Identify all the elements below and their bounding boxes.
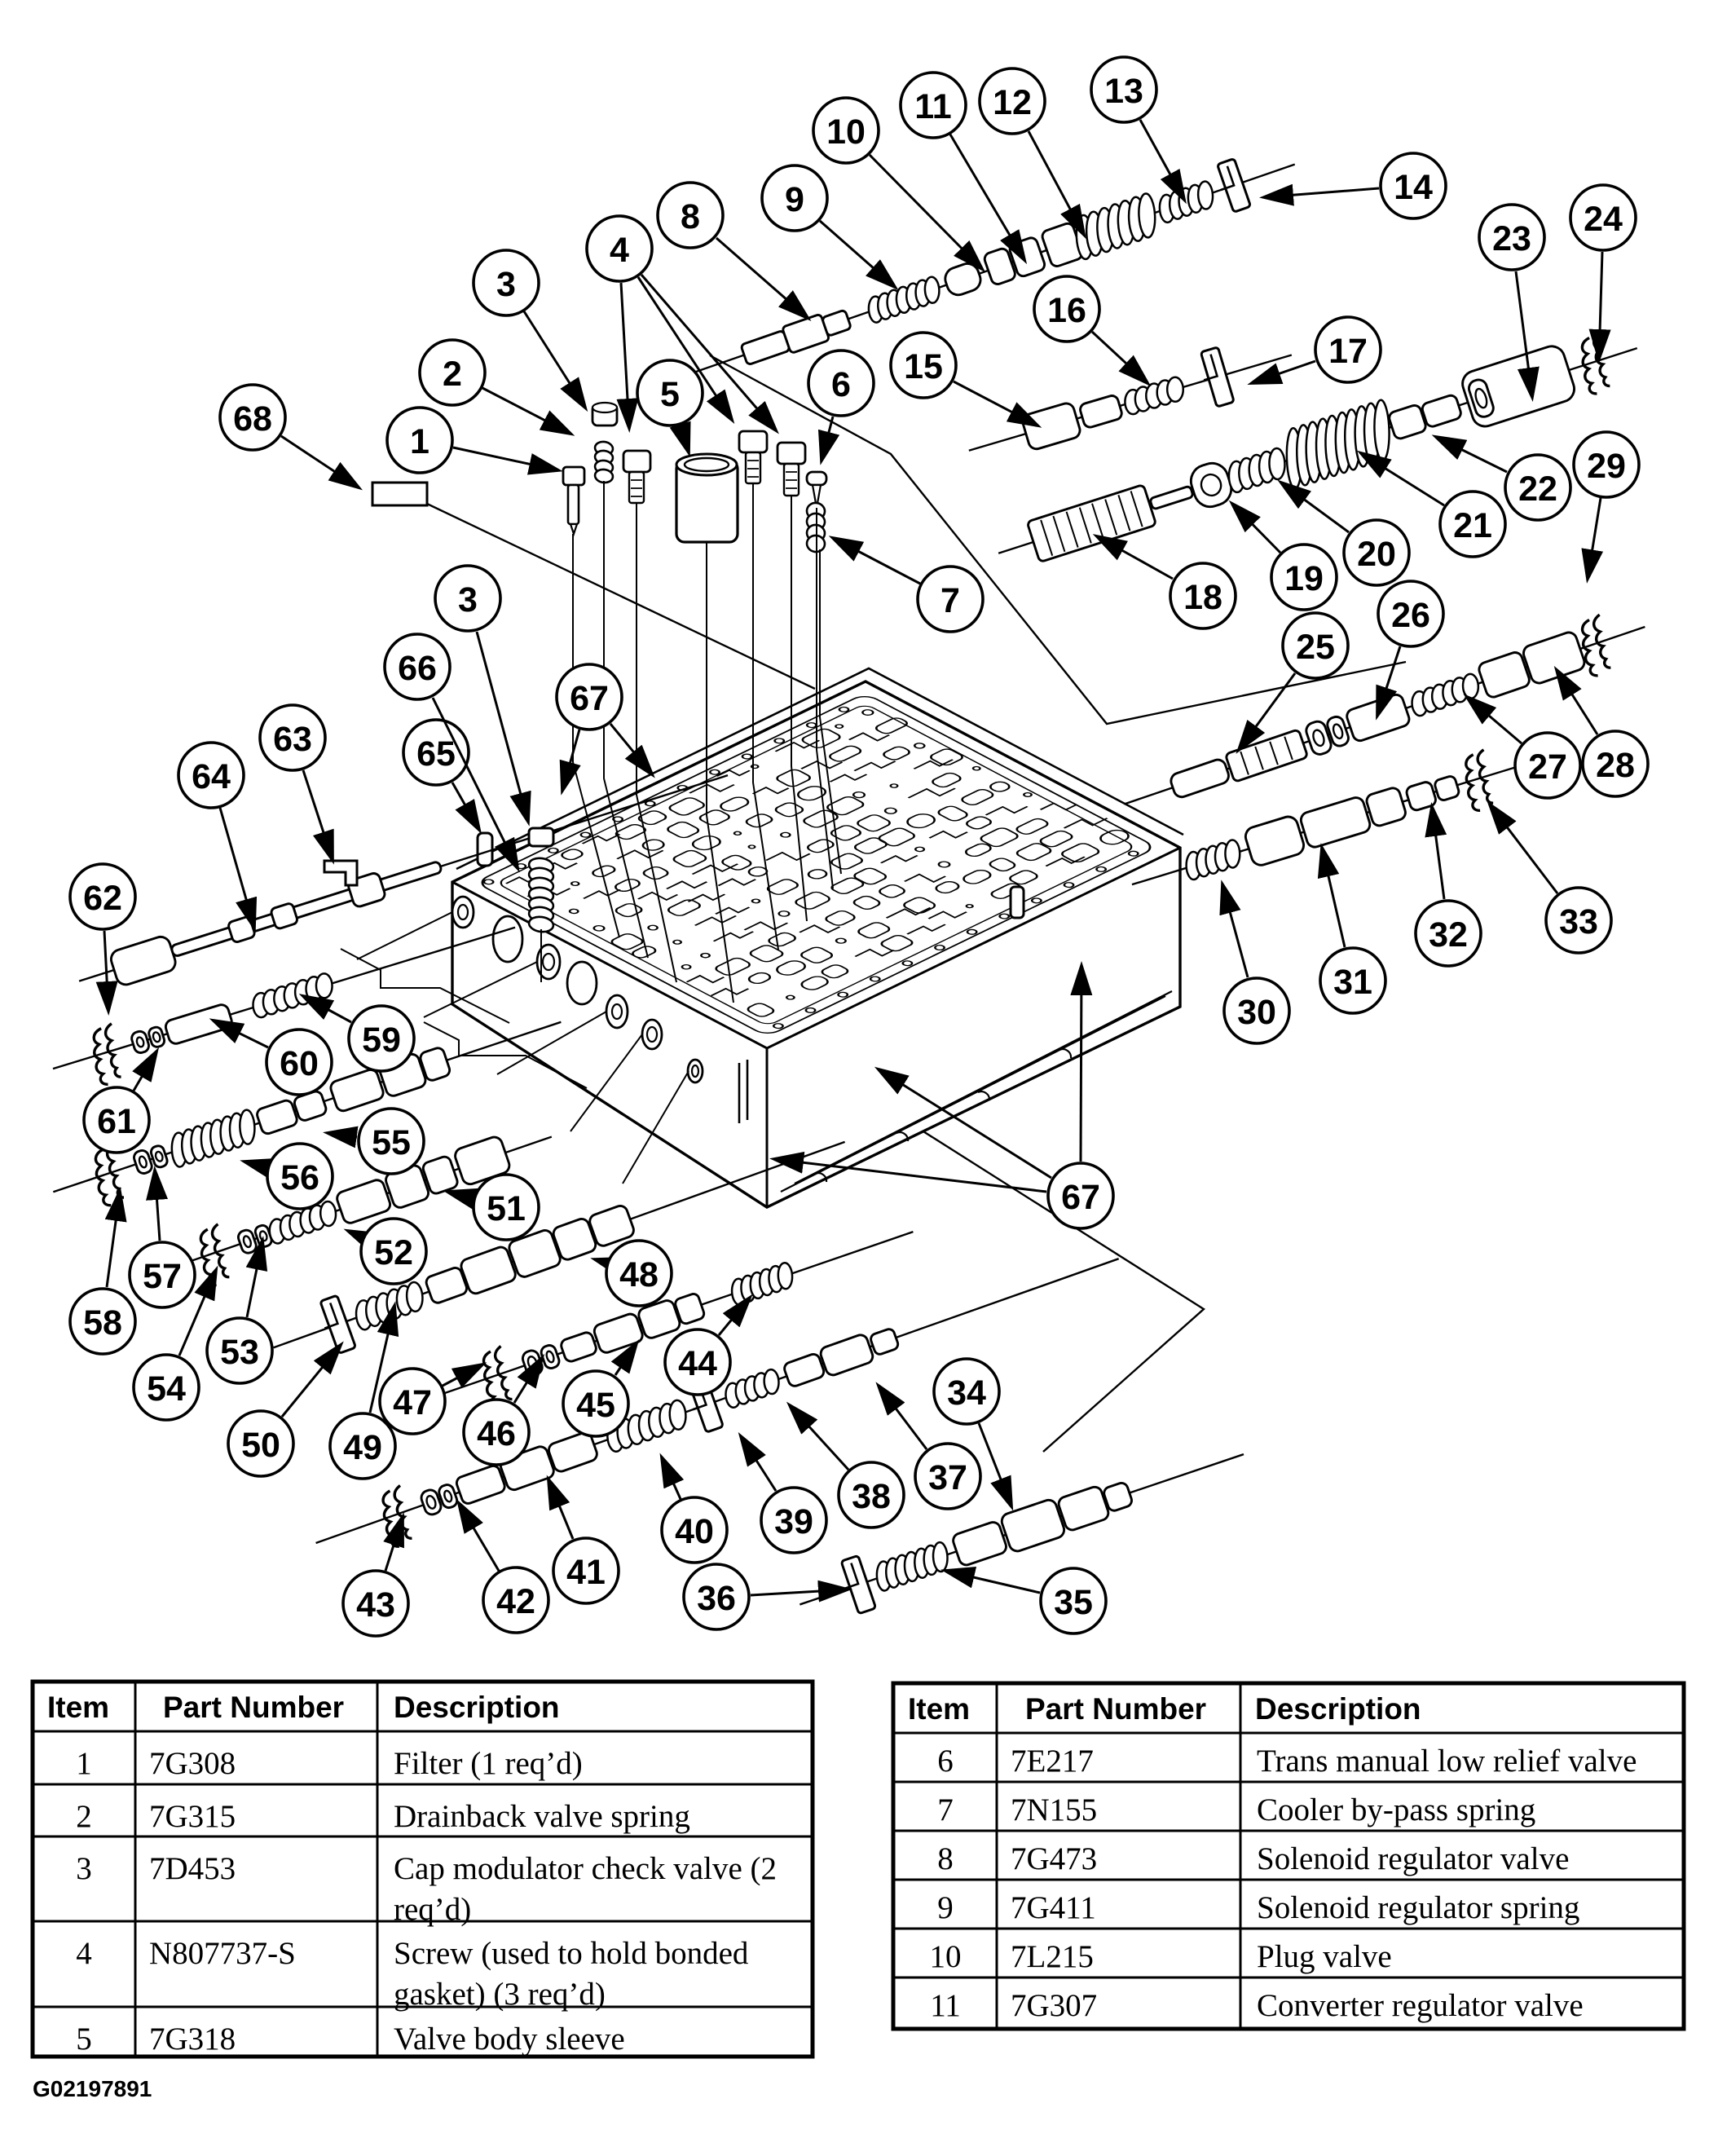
svg-text:60: 60 — [280, 1044, 319, 1083]
svg-text:4: 4 — [76, 1936, 92, 1971]
svg-text:38: 38 — [852, 1477, 891, 1516]
svg-text:31: 31 — [1333, 963, 1372, 1002]
svg-text:7: 7 — [940, 581, 960, 620]
svg-text:Solenoid regulator valve: Solenoid regulator valve — [1257, 1841, 1569, 1876]
svg-text:67: 67 — [1061, 1178, 1100, 1217]
svg-text:Trans manual low relief valve: Trans manual low relief valve — [1257, 1744, 1637, 1779]
svg-text:22: 22 — [1518, 470, 1557, 509]
svg-text:req’d): req’d) — [394, 1892, 471, 1927]
svg-text:Description: Description — [1255, 1692, 1421, 1726]
svg-text:27: 27 — [1528, 747, 1567, 787]
svg-text:7L215: 7L215 — [1011, 1939, 1094, 1974]
svg-text:13: 13 — [1104, 72, 1143, 111]
svg-text:64: 64 — [192, 757, 231, 796]
svg-text:Converter regulator valve: Converter regulator valve — [1257, 1988, 1584, 2023]
svg-text:62: 62 — [83, 879, 122, 918]
svg-text:24: 24 — [1584, 200, 1623, 239]
svg-text:17: 17 — [1328, 332, 1368, 371]
svg-text:68: 68 — [233, 399, 272, 439]
svg-text:Item: Item — [47, 1691, 109, 1724]
svg-text:9: 9 — [785, 180, 804, 219]
svg-text:7G318: 7G318 — [149, 2022, 236, 2057]
svg-text:23: 23 — [1492, 219, 1531, 258]
svg-text:25: 25 — [1296, 628, 1335, 667]
svg-text:32: 32 — [1429, 915, 1468, 955]
svg-text:Part Number: Part Number — [1025, 1692, 1206, 1726]
svg-text:Filter (1 req’d): Filter (1 req’d) — [394, 1746, 583, 1781]
svg-text:11: 11 — [930, 1988, 961, 2023]
svg-text:35: 35 — [1054, 1583, 1093, 1622]
svg-text:52: 52 — [374, 1233, 413, 1272]
svg-text:59: 59 — [362, 1021, 401, 1060]
svg-text:1: 1 — [76, 1746, 92, 1781]
svg-text:21: 21 — [1453, 506, 1492, 545]
svg-text:2: 2 — [76, 1799, 92, 1834]
svg-text:40: 40 — [675, 1512, 714, 1551]
svg-text:46: 46 — [477, 1414, 516, 1453]
svg-text:44: 44 — [678, 1344, 717, 1383]
svg-text:7G308: 7G308 — [149, 1746, 236, 1781]
svg-text:48: 48 — [619, 1255, 659, 1294]
svg-text:3: 3 — [458, 580, 478, 619]
svg-text:2: 2 — [443, 355, 462, 394]
svg-text:11: 11 — [914, 87, 951, 126]
svg-text:37: 37 — [928, 1458, 967, 1497]
svg-text:41: 41 — [566, 1553, 606, 1592]
svg-text:Drainback valve spring: Drainback valve spring — [394, 1799, 690, 1834]
svg-text:66: 66 — [398, 649, 437, 688]
svg-text:3: 3 — [76, 1851, 92, 1886]
svg-text:53: 53 — [220, 1333, 259, 1372]
svg-text:36: 36 — [697, 1579, 736, 1618]
svg-text:12: 12 — [993, 83, 1032, 122]
svg-text:6: 6 — [831, 365, 851, 404]
svg-text:1: 1 — [410, 422, 429, 461]
svg-text:26: 26 — [1391, 596, 1430, 635]
svg-text:54: 54 — [147, 1369, 186, 1409]
svg-text:10: 10 — [930, 1939, 962, 1974]
svg-text:33: 33 — [1559, 902, 1598, 941]
svg-text:5: 5 — [660, 375, 680, 414]
svg-text:7N155: 7N155 — [1011, 1792, 1097, 1828]
svg-text:15: 15 — [904, 347, 943, 386]
svg-text:19: 19 — [1284, 559, 1324, 598]
svg-text:10: 10 — [826, 112, 866, 152]
svg-text:28: 28 — [1596, 746, 1635, 785]
svg-text:Description: Description — [394, 1691, 560, 1724]
svg-text:67: 67 — [570, 679, 609, 718]
svg-text:51: 51 — [487, 1189, 526, 1228]
svg-text:55: 55 — [372, 1123, 411, 1162]
svg-text:42: 42 — [496, 1582, 535, 1621]
svg-text:58: 58 — [83, 1303, 122, 1343]
svg-text:7D453: 7D453 — [149, 1851, 236, 1886]
svg-text:20: 20 — [1357, 535, 1396, 574]
svg-text:9: 9 — [937, 1890, 954, 1925]
svg-text:Valve body sleeve: Valve body sleeve — [394, 2022, 625, 2057]
svg-text:45: 45 — [576, 1386, 615, 1425]
svg-text:16: 16 — [1047, 291, 1086, 330]
svg-text:65: 65 — [416, 734, 456, 774]
svg-text:Item: Item — [908, 1692, 970, 1726]
svg-text:Part Number: Part Number — [163, 1691, 344, 1724]
svg-text:61: 61 — [97, 1102, 136, 1141]
svg-text:49: 49 — [343, 1428, 382, 1467]
svg-text:7G473: 7G473 — [1011, 1841, 1097, 1876]
svg-text:47: 47 — [393, 1383, 432, 1422]
svg-text:43: 43 — [356, 1585, 395, 1625]
svg-text:7G411: 7G411 — [1011, 1890, 1096, 1925]
svg-text:34: 34 — [947, 1373, 986, 1413]
svg-text:50: 50 — [241, 1426, 280, 1465]
svg-text:57: 57 — [143, 1257, 182, 1296]
svg-text:7G315: 7G315 — [149, 1799, 236, 1834]
svg-text:8: 8 — [681, 197, 700, 236]
svg-text:Cap modulator check valve (2: Cap modulator check valve (2 — [394, 1851, 777, 1886]
svg-text:56: 56 — [280, 1158, 319, 1197]
svg-text:30: 30 — [1237, 993, 1276, 1032]
svg-text:Plug valve: Plug valve — [1257, 1939, 1392, 1974]
svg-text:8: 8 — [937, 1841, 954, 1876]
svg-text:18: 18 — [1183, 578, 1222, 617]
svg-text:4: 4 — [610, 231, 629, 270]
svg-text:N807737-S: N807737-S — [149, 1936, 296, 1971]
svg-text:39: 39 — [774, 1502, 813, 1541]
svg-text:Screw (used to hold bonded: Screw (used to hold bonded — [394, 1936, 749, 1971]
svg-text:7E217: 7E217 — [1011, 1744, 1094, 1779]
svg-text:5: 5 — [76, 2022, 92, 2057]
svg-text:gasket) (3 req’d): gasket) (3 req’d) — [394, 1977, 606, 2012]
svg-text:6: 6 — [937, 1744, 954, 1779]
svg-text:14: 14 — [1394, 168, 1433, 207]
svg-text:3: 3 — [496, 265, 516, 304]
svg-text:7G307: 7G307 — [1011, 1988, 1097, 2023]
svg-text:63: 63 — [273, 720, 312, 759]
svg-text:7: 7 — [937, 1792, 954, 1828]
svg-text:G02197891: G02197891 — [33, 2076, 152, 2101]
svg-text:29: 29 — [1587, 447, 1626, 486]
svg-text:Cooler by-pass spring: Cooler by-pass spring — [1257, 1792, 1535, 1828]
svg-text:Solenoid regulator spring: Solenoid regulator spring — [1257, 1890, 1579, 1925]
